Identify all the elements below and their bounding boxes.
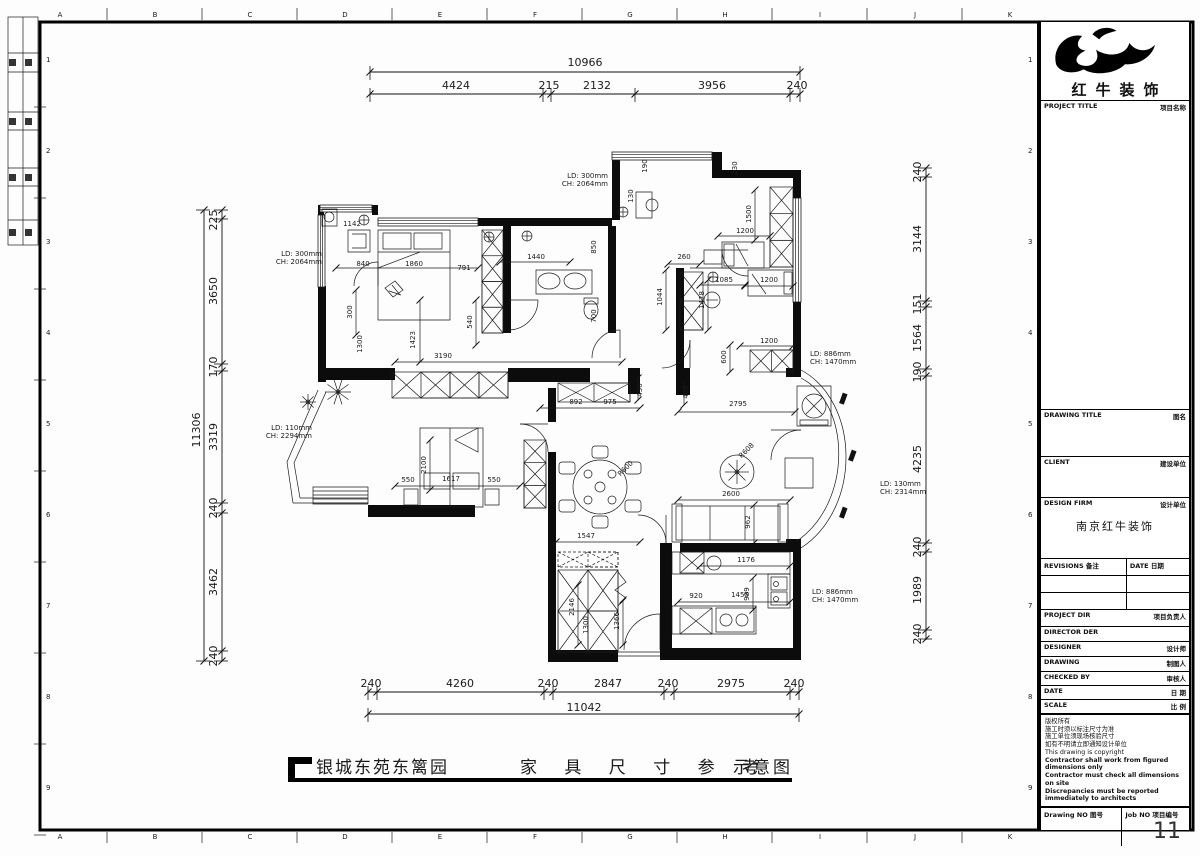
grid-letter: A bbox=[58, 833, 63, 841]
door-arc bbox=[624, 614, 660, 650]
note-line: This drawing is copyright bbox=[1045, 749, 1185, 757]
design-firm-cn: 设计单位 bbox=[1160, 499, 1186, 509]
note-line: 如有不明请立即通知设计单位 bbox=[1045, 741, 1185, 749]
grid-letter: E bbox=[438, 11, 442, 19]
project-title-space bbox=[1041, 113, 1189, 409]
date-en: DATE bbox=[1130, 562, 1149, 570]
dim-text: LD: 300mm bbox=[281, 250, 322, 258]
dim-text: 1085 bbox=[715, 276, 733, 284]
brand-name: 红牛装饰 bbox=[1041, 78, 1189, 100]
door-arc bbox=[638, 515, 666, 543]
grid-letter: J bbox=[913, 11, 916, 19]
dim-text: 2975 bbox=[717, 677, 745, 690]
revision-empty-row bbox=[1041, 592, 1189, 609]
dim-text: 190 bbox=[911, 362, 924, 383]
dim-text: 1300 bbox=[356, 335, 364, 353]
title-block: 红牛装饰 PROJECT TITLE 项目名称 DRAWING TITLE 图名… bbox=[1037, 22, 1191, 830]
dim-text: 1176 bbox=[737, 556, 755, 564]
note-line: Discrepancies must be reported immediate… bbox=[1045, 788, 1185, 803]
dim-text: CH: 2064mm bbox=[562, 180, 608, 188]
dim-text: 989 bbox=[743, 587, 751, 600]
grid-number: 8 bbox=[1028, 693, 1032, 701]
dim-text: 1617 bbox=[442, 475, 460, 483]
checked-by-en: CHECKED BY bbox=[1044, 673, 1090, 684]
revision-empty-row bbox=[1041, 575, 1189, 592]
dim-text: 10966 bbox=[568, 56, 603, 69]
fold-strip-mark bbox=[25, 118, 32, 125]
drawing-title-space bbox=[1041, 422, 1189, 456]
dim-text: CH: 1470mm bbox=[810, 358, 856, 366]
plate bbox=[608, 470, 616, 478]
furniture bbox=[485, 489, 499, 505]
balcony-mullion bbox=[848, 450, 856, 462]
designer-row: DESIGNER 设计师 bbox=[1041, 641, 1189, 656]
furniture bbox=[313, 487, 368, 504]
sink-drain bbox=[774, 582, 779, 587]
fold-strip-mark bbox=[9, 229, 16, 236]
furniture bbox=[636, 192, 652, 218]
door-arc bbox=[592, 330, 620, 358]
wall bbox=[318, 286, 326, 382]
job-no-value: 11 bbox=[1153, 819, 1181, 844]
plate bbox=[584, 496, 592, 504]
grid-letter: H bbox=[722, 11, 727, 19]
plate bbox=[608, 496, 616, 504]
grid-letter: I bbox=[819, 833, 821, 841]
dim-text: LD: 130mm bbox=[880, 480, 921, 488]
design-firm-value: 南京红牛装饰 bbox=[1041, 510, 1189, 558]
client-row: CLIENT 建设单位 bbox=[1041, 456, 1189, 469]
design-firm-en: DESIGN FIRM bbox=[1044, 499, 1092, 509]
dim-text: 1547 bbox=[577, 532, 595, 540]
dim-text: 190 bbox=[641, 159, 649, 172]
dim-text: 850 bbox=[590, 240, 598, 253]
copyright-notes: 版权所有 施工时须以标注尺寸为准 施工单位须现场核验尺寸 如有不明请立即通知设计… bbox=[1041, 713, 1189, 806]
date-row: DATE 日 期 bbox=[1041, 685, 1189, 699]
dim-text: 1860 bbox=[405, 260, 423, 268]
client-cn: 建设单位 bbox=[1160, 458, 1186, 468]
footer-corner-mark-2 bbox=[288, 757, 295, 779]
grid-letter: C bbox=[248, 11, 253, 19]
dim-text: 11306 bbox=[190, 413, 203, 448]
balcony-mullion bbox=[839, 507, 847, 519]
project-dir-cn: 项目负责人 bbox=[1154, 611, 1187, 625]
wall bbox=[660, 543, 672, 650]
dim-text: 1500 bbox=[745, 205, 753, 223]
drawing-no-cell: Drawing NO 图号 bbox=[1041, 808, 1122, 846]
dim-text: 920 bbox=[689, 592, 702, 600]
wall bbox=[793, 545, 801, 660]
grid-letter: D bbox=[342, 833, 347, 841]
project-title-row: PROJECT TITLE 项目名称 bbox=[1041, 100, 1189, 113]
design-firm-row: DESIGN FIRM 设计单位 bbox=[1041, 497, 1189, 510]
plant-leaf bbox=[308, 396, 314, 402]
fold-strip-mark bbox=[25, 229, 32, 236]
wall bbox=[478, 218, 612, 226]
dim-text: 3319 bbox=[207, 423, 220, 451]
dim-text: 130 bbox=[627, 189, 635, 202]
grid-letter: F bbox=[533, 833, 537, 841]
balcony-mullion bbox=[839, 393, 847, 405]
furniture bbox=[672, 504, 682, 542]
footer-project-name: 银城东苑东篱园 bbox=[316, 758, 449, 778]
dim-text: 1440 bbox=[527, 253, 545, 261]
grid-number: 5 bbox=[1028, 420, 1032, 428]
dim-text: 540 bbox=[466, 315, 474, 328]
dim-text: 1200 bbox=[736, 227, 754, 235]
furniture bbox=[778, 504, 788, 542]
drawing-title-row: DRAWING TITLE 图名 bbox=[1041, 409, 1189, 422]
project-title-en: PROJECT TITLE bbox=[1044, 102, 1098, 112]
fold-strip-mark bbox=[9, 59, 16, 66]
grid-letter: F bbox=[533, 11, 537, 19]
designer-en: DESIGNER bbox=[1044, 643, 1081, 655]
dim-text: 1044 bbox=[656, 288, 664, 306]
dim-text: 3650 bbox=[207, 277, 220, 305]
grid-letter: J bbox=[913, 833, 916, 841]
dim-text: 2847 bbox=[594, 677, 622, 690]
drawing-by-row: DRAWING 制图人 bbox=[1041, 656, 1189, 671]
grid-letter: B bbox=[153, 833, 158, 841]
grid-letter: B bbox=[153, 11, 158, 19]
revisions-table: REVISIONS 备注 DATE 日期 bbox=[1041, 558, 1189, 609]
checked-by-row: CHECKED BY 审核人 bbox=[1041, 671, 1189, 685]
dim-text: CH: 2294mm bbox=[266, 432, 312, 440]
plant-leaf bbox=[302, 402, 308, 408]
dining-table bbox=[573, 460, 627, 514]
floor-plan-svg: 银城东苑东篱园 家 具 尺 寸 参 考 示意图 AABBCCDDEEFFGGHH… bbox=[0, 0, 1200, 856]
director-row: DIRECTOR DER bbox=[1041, 626, 1189, 641]
wall bbox=[548, 388, 556, 422]
grid-number: 4 bbox=[1028, 329, 1033, 337]
dim-text: 240 bbox=[538, 677, 559, 690]
dim-text: 550 bbox=[487, 476, 500, 484]
grid-number: 5 bbox=[46, 420, 50, 428]
furniture bbox=[672, 606, 756, 634]
revisions-en: REVISIONS bbox=[1044, 562, 1084, 570]
designer-cn: 设计师 bbox=[1167, 643, 1187, 655]
scale-en: SCALE bbox=[1044, 701, 1067, 712]
dim-text: CH: 2314mm bbox=[880, 488, 926, 496]
drawing-title-cn: 图名 bbox=[1173, 411, 1186, 421]
dim-text: 300 bbox=[346, 305, 354, 318]
dining-chair bbox=[559, 500, 575, 512]
dim-text: 1200 bbox=[760, 276, 778, 284]
project-dir-en: PROJECT DIR bbox=[1044, 611, 1090, 625]
dim-text: 600 bbox=[720, 350, 728, 363]
dim-text: 700 bbox=[590, 309, 598, 322]
kitchen-basin bbox=[707, 556, 721, 570]
dining-chair bbox=[592, 446, 608, 458]
grid-number: 9 bbox=[1028, 784, 1032, 792]
grid-letter: H bbox=[722, 833, 727, 841]
dim-text: 1423 bbox=[409, 331, 417, 349]
note-line: Contractor must check all dimensions on … bbox=[1045, 772, 1185, 787]
job-no-label: Job NO 项目编号 bbox=[1125, 811, 1178, 819]
window bbox=[320, 205, 372, 212]
dim-text: 1478 bbox=[698, 291, 706, 309]
wall bbox=[612, 160, 620, 220]
balcony-wall bbox=[294, 463, 300, 498]
dim-text: 230 bbox=[731, 161, 739, 174]
grid-letter: I bbox=[819, 11, 821, 19]
wall bbox=[548, 452, 556, 542]
burner bbox=[736, 614, 748, 626]
drawing-by-en: DRAWING bbox=[1044, 658, 1080, 670]
furniture bbox=[704, 250, 722, 264]
grid-number: 7 bbox=[1028, 602, 1032, 610]
grid-number: 8 bbox=[46, 693, 50, 701]
grid-letter: C bbox=[248, 833, 253, 841]
dim-text: 840 bbox=[356, 260, 369, 268]
furniture bbox=[736, 244, 748, 266]
dim-text: 240 bbox=[911, 162, 924, 183]
furniture bbox=[348, 230, 370, 252]
client-space bbox=[1041, 469, 1189, 497]
sink-drain bbox=[774, 597, 779, 602]
dim-text: 3144 bbox=[911, 225, 924, 253]
dim-text: 225 bbox=[207, 210, 220, 231]
dim-text: LD: 886mm bbox=[812, 588, 853, 596]
dining-chair bbox=[559, 462, 575, 474]
dim-text: 215 bbox=[539, 79, 560, 92]
dim-text: 3190 bbox=[434, 352, 452, 360]
dining-chair bbox=[625, 500, 641, 512]
grid-number: 6 bbox=[1028, 511, 1033, 519]
dim-text: 240 bbox=[911, 537, 924, 558]
dim-text: 791 bbox=[457, 264, 470, 272]
door-arc bbox=[508, 300, 538, 330]
checked-by-cn: 审核人 bbox=[1167, 673, 1187, 684]
dim-text: 1366 bbox=[613, 612, 621, 630]
burner bbox=[720, 614, 732, 626]
client-en: CLIENT bbox=[1044, 458, 1070, 468]
grid-number: 6 bbox=[46, 511, 51, 519]
basin bbox=[564, 273, 586, 289]
dining-center bbox=[595, 482, 605, 492]
date-label: DATE 日期 bbox=[1127, 559, 1189, 575]
footer-underline bbox=[288, 778, 792, 782]
dim-text: CH: 2064mm bbox=[276, 258, 322, 266]
dim-text: 260 bbox=[677, 253, 690, 261]
window bbox=[793, 198, 801, 302]
project-title-cn: 项目名称 bbox=[1160, 102, 1186, 112]
dim-text: R608 bbox=[737, 441, 756, 460]
grid-number: 2 bbox=[1028, 147, 1032, 155]
grid-number: 3 bbox=[1028, 238, 1032, 246]
note-line: 版权所有 bbox=[1045, 718, 1185, 726]
date-cn: 日期 bbox=[1151, 562, 1164, 570]
dim-text: 240 bbox=[911, 624, 924, 645]
dim-text: 170 bbox=[207, 357, 220, 378]
wall bbox=[548, 540, 556, 662]
dining-chair bbox=[592, 516, 608, 528]
dim-text: 240 bbox=[361, 677, 382, 690]
furniture bbox=[383, 233, 411, 249]
dim-text: LD: 886mm bbox=[810, 350, 851, 358]
grid-letter: E bbox=[438, 833, 442, 841]
dim-text: 2132 bbox=[583, 79, 611, 92]
fold-strip-mark bbox=[25, 174, 32, 181]
wall bbox=[508, 368, 590, 382]
dim-text: 1200 bbox=[760, 337, 778, 345]
dim-text: 450 bbox=[636, 383, 644, 396]
door-swing-mark bbox=[615, 572, 626, 606]
wall bbox=[503, 226, 511, 333]
scale-cn: 比 例 bbox=[1171, 701, 1186, 712]
grid-letter: A bbox=[58, 11, 63, 19]
rednow-logo bbox=[1041, 22, 1189, 78]
dim-text: 3956 bbox=[698, 79, 726, 92]
grid-number: 7 bbox=[46, 602, 50, 610]
grid-letter: K bbox=[1008, 833, 1013, 841]
dim-text: 400 bbox=[682, 385, 690, 398]
furniture bbox=[455, 428, 478, 452]
revisions-cn: 备注 bbox=[1086, 562, 1099, 570]
wall bbox=[712, 152, 722, 178]
dim-text: 1300 bbox=[582, 616, 590, 634]
footer-drawing-suffix: 示意图 bbox=[733, 758, 793, 778]
date-row-cn: 日 期 bbox=[1171, 687, 1186, 698]
plate bbox=[584, 470, 592, 478]
dim-text: 240 bbox=[207, 646, 220, 667]
scale-row: SCALE 比 例 bbox=[1041, 699, 1189, 713]
dim-text: 11042 bbox=[567, 701, 602, 714]
grid-number: 2 bbox=[46, 147, 50, 155]
dim-text: 240 bbox=[787, 79, 808, 92]
furniture bbox=[785, 458, 813, 488]
fold-strip-mark bbox=[9, 174, 16, 181]
window bbox=[378, 218, 478, 226]
date-row-en: DATE bbox=[1044, 687, 1063, 698]
furniture bbox=[800, 420, 828, 425]
dim-text: 2100 bbox=[420, 456, 428, 474]
dim-text: LD: 300mm bbox=[567, 172, 608, 180]
wall bbox=[680, 543, 793, 552]
dim-text: 4235 bbox=[911, 445, 924, 473]
dim-text: 4260 bbox=[446, 677, 474, 690]
furniture bbox=[784, 272, 792, 294]
dim-text: CH: 1470mm bbox=[812, 596, 858, 604]
plant-leaf bbox=[302, 396, 308, 402]
washer-drum bbox=[324, 212, 334, 222]
director-en: DIRECTOR DER bbox=[1044, 628, 1098, 640]
wall bbox=[318, 368, 395, 380]
drawing-title-en: DRAWING TITLE bbox=[1044, 411, 1102, 421]
balcony-curve bbox=[801, 370, 846, 548]
dim-text: 550 bbox=[401, 476, 414, 484]
dim-text: 975 bbox=[603, 398, 616, 406]
dim-text: 2600 bbox=[722, 490, 740, 498]
dim-text: 892 bbox=[569, 398, 582, 406]
project-dir-row: PROJECT DIR 项目负责人 bbox=[1041, 609, 1189, 626]
grid-letter: G bbox=[627, 833, 632, 841]
furniture bbox=[676, 506, 780, 540]
dim-text: 962 bbox=[744, 515, 752, 528]
balcony-wall bbox=[287, 462, 293, 503]
grid-number: 1 bbox=[46, 56, 50, 64]
grid-number: 1 bbox=[1028, 56, 1032, 64]
dim-text: 3462 bbox=[207, 568, 220, 596]
wall bbox=[608, 226, 616, 333]
furniture bbox=[404, 489, 418, 505]
dim-text: 4424 bbox=[442, 79, 470, 92]
grid-number: 4 bbox=[46, 329, 51, 337]
dim-text: 1989 bbox=[911, 576, 924, 604]
dim-text: 2146 bbox=[568, 598, 576, 616]
dim-text: LD: 110mm bbox=[271, 424, 312, 432]
dim-text: 240 bbox=[207, 498, 220, 519]
grid-letter: D bbox=[342, 11, 347, 19]
bull-logo-icon bbox=[1041, 22, 1161, 74]
dim-text: 2795 bbox=[729, 400, 747, 408]
furniture bbox=[672, 552, 790, 574]
fold-strip-mark bbox=[9, 118, 16, 125]
basin bbox=[538, 273, 560, 289]
drawing-sheet: 银城东苑东篱园 家 具 尺 寸 参 考 示意图 AABBCCDDEEFFGGHH… bbox=[0, 0, 1200, 856]
dim-text: 1564 bbox=[911, 324, 924, 352]
revisions-label: REVISIONS 备注 bbox=[1041, 559, 1127, 575]
door-arc bbox=[771, 430, 801, 460]
door-arc bbox=[722, 250, 748, 276]
number-row: Drawing NO 图号 Job NO 项目编号 11 bbox=[1041, 806, 1189, 846]
furniture bbox=[414, 233, 442, 249]
window bbox=[612, 152, 712, 160]
dim-text: 240 bbox=[784, 677, 805, 690]
drawing-by-cn: 制图人 bbox=[1167, 658, 1187, 670]
grid-letter: G bbox=[627, 11, 632, 19]
grid-number: 3 bbox=[46, 238, 50, 246]
dim-text: 240 bbox=[658, 677, 679, 690]
grid-number: 9 bbox=[46, 784, 50, 792]
dim-text: 151 bbox=[911, 294, 924, 315]
furniture bbox=[352, 234, 366, 248]
furniture bbox=[722, 242, 764, 268]
note-line: Contractor shall work from figured dimen… bbox=[1045, 757, 1185, 772]
fold-strip-mark bbox=[25, 59, 32, 66]
wall bbox=[660, 648, 801, 660]
wall bbox=[372, 205, 378, 215]
grid-letter: K bbox=[1008, 11, 1013, 19]
dim-text: 1142 bbox=[343, 220, 361, 228]
wall bbox=[786, 368, 801, 377]
job-no-cell: Job NO 项目编号 11 bbox=[1122, 808, 1189, 846]
